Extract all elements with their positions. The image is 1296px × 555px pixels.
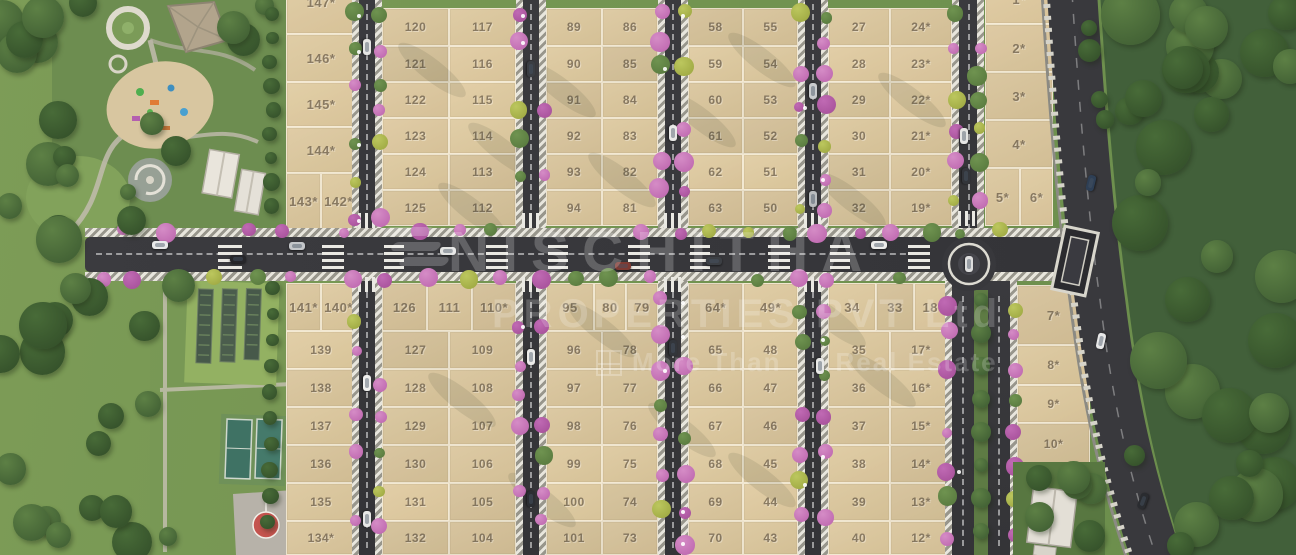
tree	[974, 458, 989, 473]
tree	[135, 391, 161, 417]
tree	[19, 302, 66, 349]
tree	[1201, 240, 1234, 273]
tree	[159, 527, 177, 545]
site-layout-render: 147*146*145*144*143*142*1201211221231241…	[0, 0, 1296, 555]
tree	[262, 488, 279, 505]
tree	[1057, 461, 1089, 493]
tree	[1091, 91, 1108, 108]
tree	[1167, 532, 1194, 555]
tree	[1194, 97, 1229, 132]
tree	[971, 488, 990, 507]
tree	[56, 164, 80, 188]
tree	[1209, 476, 1254, 521]
tree	[264, 437, 278, 451]
tree	[1074, 520, 1105, 551]
tree	[1026, 465, 1052, 491]
tree	[1255, 250, 1296, 303]
tree	[98, 403, 124, 429]
tree	[1081, 20, 1097, 36]
tree	[265, 7, 279, 21]
tree	[161, 136, 191, 166]
tree	[972, 357, 989, 374]
tree	[0, 335, 20, 373]
trees-layer	[0, 0, 1296, 555]
tree	[266, 32, 278, 44]
tree	[1135, 169, 1162, 196]
tree	[971, 323, 991, 343]
tree	[1125, 80, 1162, 117]
tree	[46, 522, 71, 547]
tree	[260, 515, 275, 530]
tree	[1268, 0, 1296, 30]
tree	[39, 101, 77, 139]
tree	[1096, 110, 1114, 128]
tree	[1165, 277, 1210, 322]
tree	[267, 308, 279, 320]
tree	[22, 0, 63, 38]
tree	[262, 384, 277, 399]
tree	[261, 462, 278, 479]
tree	[69, 0, 97, 17]
tree	[266, 334, 279, 347]
tree	[117, 206, 146, 235]
tree	[1249, 393, 1289, 433]
tree	[1101, 0, 1161, 45]
tree	[36, 216, 82, 262]
tree	[264, 359, 279, 374]
tree	[1273, 49, 1296, 83]
tree	[973, 523, 990, 540]
tree	[972, 390, 990, 408]
tree	[0, 193, 22, 219]
tree	[262, 127, 277, 142]
tree	[263, 173, 280, 190]
tree	[120, 184, 136, 200]
tree	[100, 495, 133, 528]
tree	[162, 269, 195, 302]
tree	[129, 311, 160, 342]
tree	[263, 411, 277, 425]
tree	[263, 78, 280, 95]
tree	[86, 431, 111, 456]
tree	[1078, 39, 1101, 62]
tree	[1112, 195, 1168, 251]
tree	[971, 422, 991, 442]
tree	[974, 293, 989, 308]
tree	[1248, 313, 1296, 368]
tree	[1130, 332, 1187, 389]
tree	[262, 55, 277, 70]
tree	[1025, 502, 1054, 531]
tree	[266, 102, 282, 118]
tree	[265, 152, 277, 164]
tree	[265, 281, 280, 296]
tree	[1185, 6, 1228, 49]
tree	[0, 453, 26, 485]
tree	[140, 112, 164, 136]
tree	[1236, 450, 1263, 477]
tree	[264, 198, 279, 213]
tree	[217, 11, 250, 44]
tree	[1124, 445, 1145, 466]
tree	[1136, 120, 1191, 175]
tree	[13, 504, 50, 541]
